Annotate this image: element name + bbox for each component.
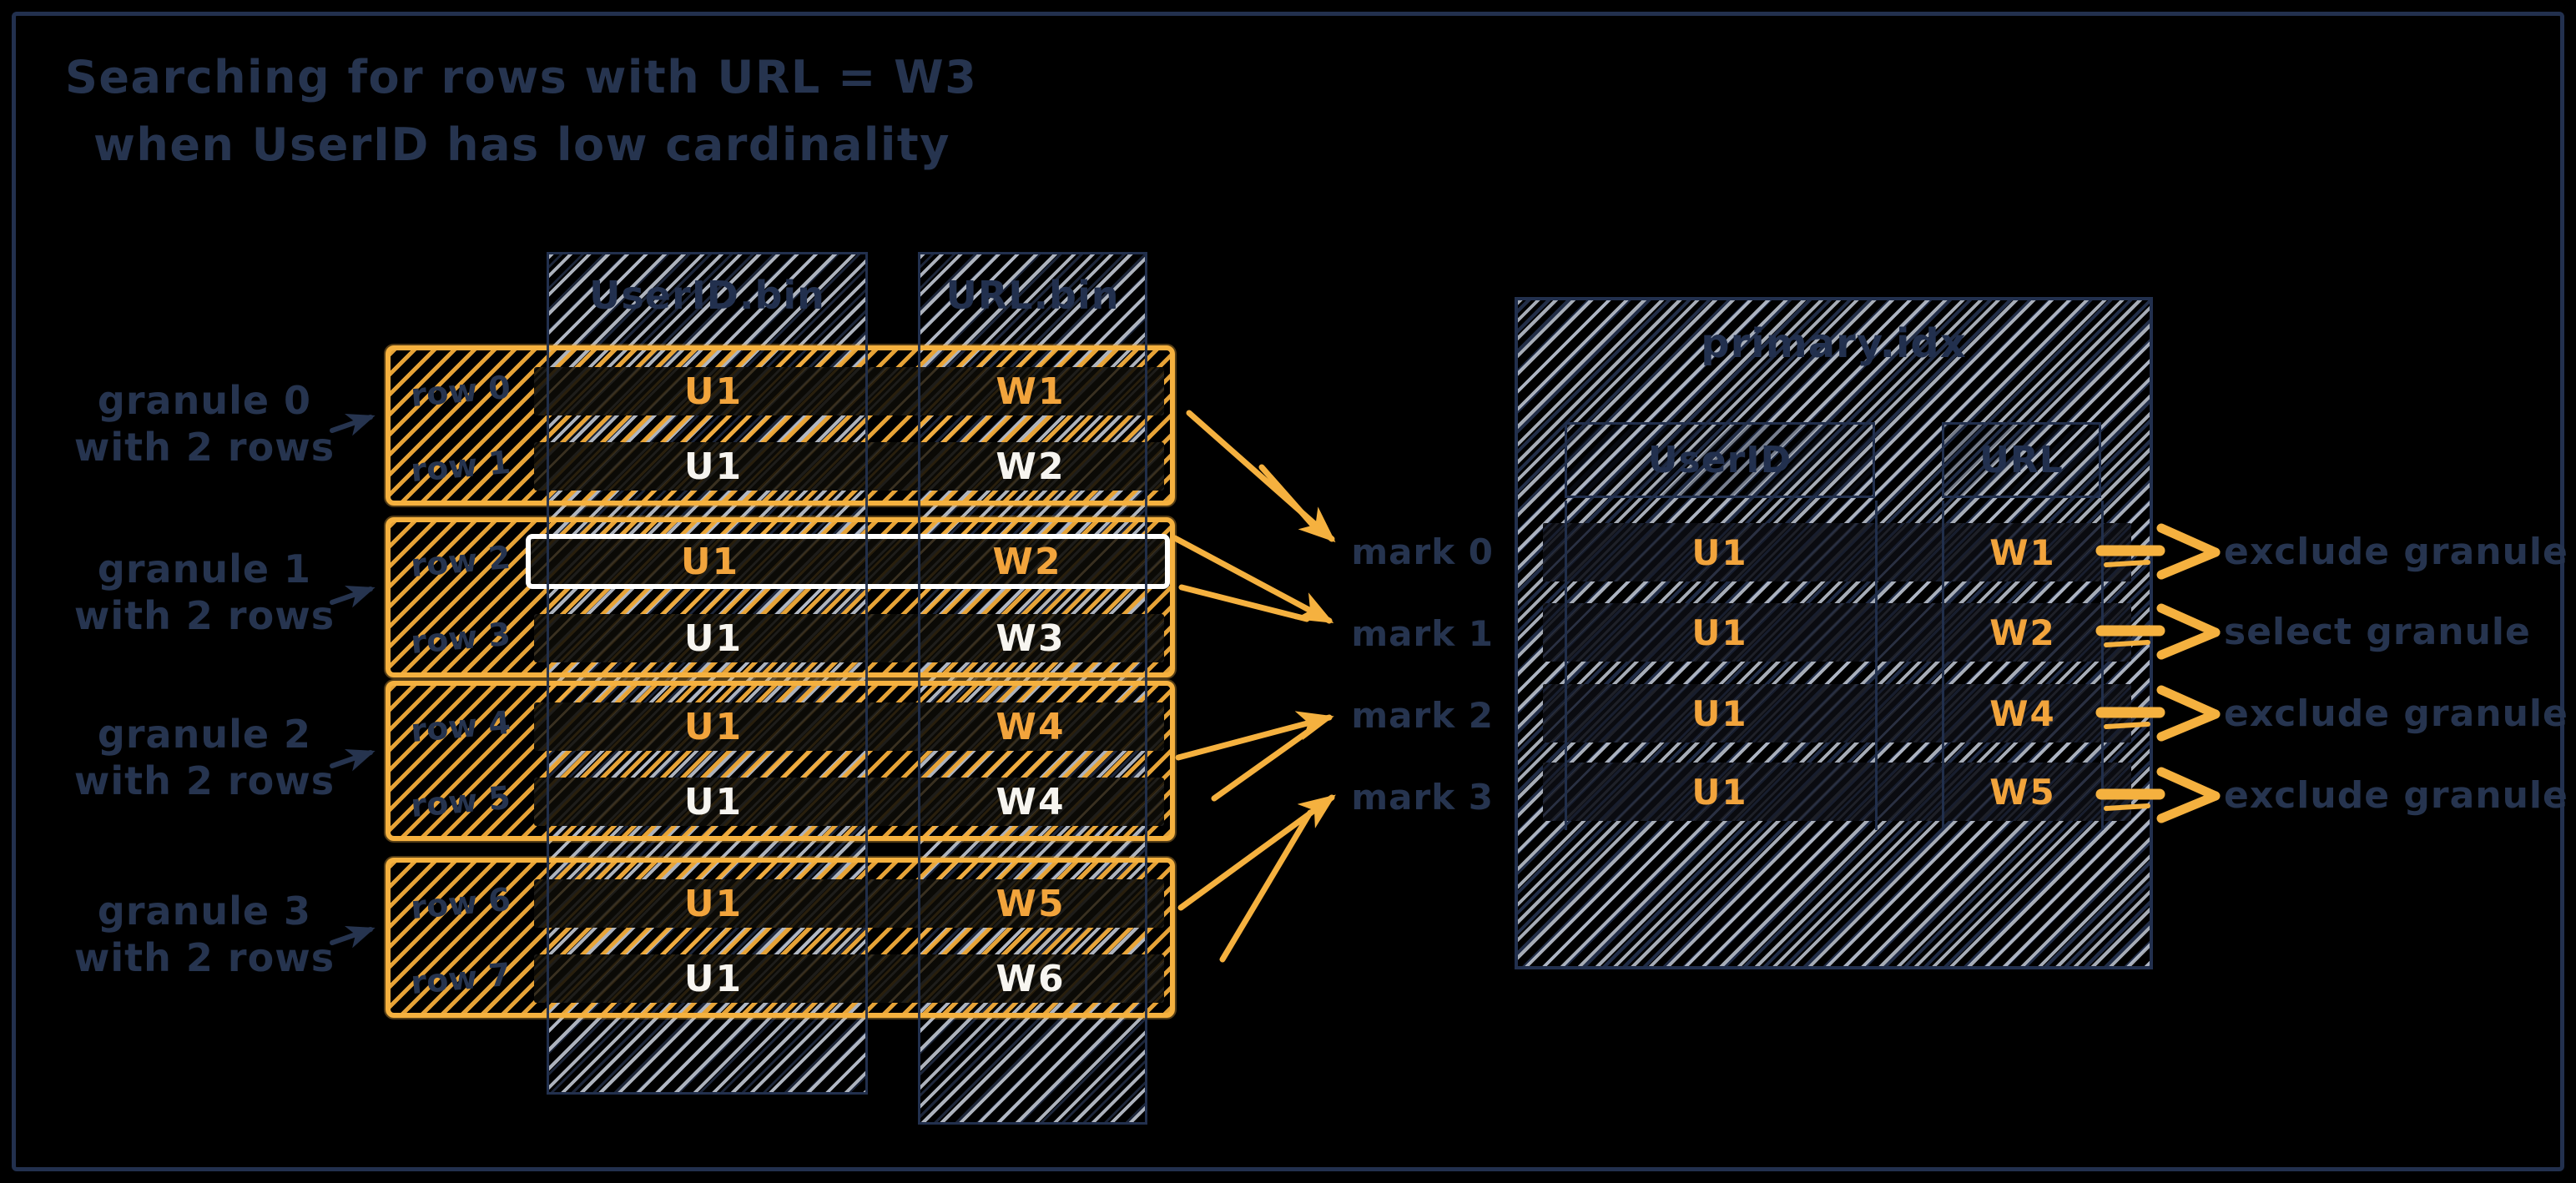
granule-2-label-line2: with 2 rows <box>67 758 342 804</box>
url-bin-header: URL.bin <box>920 273 1145 318</box>
cell-userid: U1 <box>1560 684 1880 743</box>
granule-0-box: row 0 row 1 U1 W1 U1 W2 <box>386 345 1175 506</box>
row-4-label: row 4 <box>392 697 529 757</box>
granule-0-label-line2: with 2 rows <box>67 424 342 471</box>
cell-userid: U1 <box>547 702 880 751</box>
row-1-label: row 1 <box>392 436 529 496</box>
cell-userid: U1 <box>1560 603 1880 662</box>
cell-url: W2 <box>1939 603 2106 662</box>
diagram-title: Searching for rows with URL = W3 when Us… <box>65 43 977 179</box>
cell-userid: U1 <box>1560 763 1880 821</box>
granule-1-label: granule 1 with 2 rows <box>67 546 342 639</box>
granule-2-label-line1: granule 2 <box>67 711 342 758</box>
cell-url: W4 <box>914 702 1147 751</box>
granule-3-label-line1: granule 3 <box>67 888 342 934</box>
primary-idx-row-2: U1 W4 <box>1543 684 2131 743</box>
mark-1-label: mark 1 <box>1318 609 1494 659</box>
mark-0-label: mark 0 <box>1318 527 1494 577</box>
primary-idx-panel: primary.idx UserID URL U1 W1 U1 W2 U1 W4… <box>1515 297 2153 969</box>
granule-2-row-5: U1 W4 <box>534 778 1164 826</box>
cell-url: W4 <box>1939 684 2106 743</box>
row-2-label: row 2 <box>392 531 529 591</box>
cell-userid: U1 <box>547 614 880 662</box>
primary-idx-title: primary.idx <box>1518 320 2150 367</box>
row-0-label: row 0 <box>392 361 529 421</box>
granule-0-row-1: U1 W2 <box>534 442 1164 491</box>
cell-url: W2 <box>910 539 1144 584</box>
granule-1-label-line2: with 2 rows <box>67 592 342 639</box>
granule-1-box: row 2 row 3 U1 W2 U1 W3 <box>386 517 1175 677</box>
mark-3-label: mark 3 <box>1318 773 1494 823</box>
cell-userid: U1 <box>547 954 880 1003</box>
url-column-left-border <box>918 342 920 1029</box>
granule-3-label-line2: with 2 rows <box>67 934 342 981</box>
mark-2-label: mark 2 <box>1318 691 1494 741</box>
userid-column-right-border <box>865 342 868 1029</box>
cell-url: W1 <box>914 367 1147 415</box>
outcome-0-label: exclude granule <box>2224 527 2568 577</box>
row-7-label: row 7 <box>392 949 529 1009</box>
granule-1-label-line1: granule 1 <box>67 546 342 592</box>
cell-url: W3 <box>914 614 1147 662</box>
granule-0-label-line1: granule 0 <box>67 377 342 424</box>
row-3-label: row 3 <box>392 608 529 668</box>
cell-userid: U1 <box>547 879 880 928</box>
cell-userid: U1 <box>547 367 880 415</box>
primary-idx-row-1: U1 W2 <box>1543 603 2131 662</box>
url-column-right-border <box>1145 342 1147 1029</box>
granule-3-row-7: U1 W6 <box>534 954 1164 1003</box>
granule-2-label: granule 2 with 2 rows <box>67 711 342 804</box>
row-6-label: row 6 <box>392 873 529 934</box>
primary-idx-row-0: U1 W1 <box>1543 523 2131 581</box>
primary-idx-userid-header: UserID <box>1565 422 1875 498</box>
cell-url: W4 <box>914 778 1147 826</box>
primary-idx-url-header: URL <box>1942 422 2101 498</box>
userid-column-left-border <box>547 342 549 1029</box>
cell-url: W1 <box>1939 523 2106 581</box>
cell-userid: U1 <box>547 442 880 491</box>
granule-3-row-6: U1 W5 <box>534 879 1164 928</box>
granule-1-row-2-highlighted: U1 W2 <box>526 534 1170 589</box>
title-line-1: Searching for rows with URL = W3 <box>65 43 977 111</box>
row-5-label: row 5 <box>392 772 529 832</box>
granule-2-box: row 4 row 5 U1 W4 U1 W4 <box>386 681 1175 841</box>
idx-userid-left-border <box>1565 501 1567 830</box>
title-line-2: when UserID has low cardinality <box>65 111 977 179</box>
idx-url-right-border <box>2101 501 2104 830</box>
cell-url: W2 <box>914 442 1147 491</box>
granule-3-box: row 6 row 7 U1 W5 U1 W6 <box>386 858 1175 1018</box>
primary-idx-row-3: U1 W5 <box>1543 763 2131 821</box>
idx-userid-right-border <box>1875 501 1878 830</box>
idx-url-left-border <box>1942 501 1944 830</box>
granule-1-row-3: U1 W3 <box>534 614 1164 662</box>
diagram-page: { "title": { "line1": "Searching for row… <box>0 0 2576 1183</box>
cell-url: W5 <box>914 879 1147 928</box>
granule-0-label: granule 0 with 2 rows <box>67 377 342 471</box>
cell-userid: U1 <box>547 778 880 826</box>
granule-0-row-0: U1 W1 <box>534 367 1164 415</box>
cell-url: W5 <box>1939 763 2106 821</box>
granule-3-label: granule 3 with 2 rows <box>67 888 342 981</box>
outcome-3-label: exclude granule <box>2224 771 2568 821</box>
outcome-2-label: exclude granule <box>2224 689 2568 739</box>
cell-url: W6 <box>914 954 1147 1003</box>
granule-2-row-4: U1 W4 <box>534 702 1164 751</box>
cell-userid: U1 <box>1560 523 1880 581</box>
cell-userid: U1 <box>543 539 877 584</box>
userid-bin-header: UserID.bin <box>549 273 865 318</box>
outcome-1-label: select granule <box>2224 607 2531 657</box>
